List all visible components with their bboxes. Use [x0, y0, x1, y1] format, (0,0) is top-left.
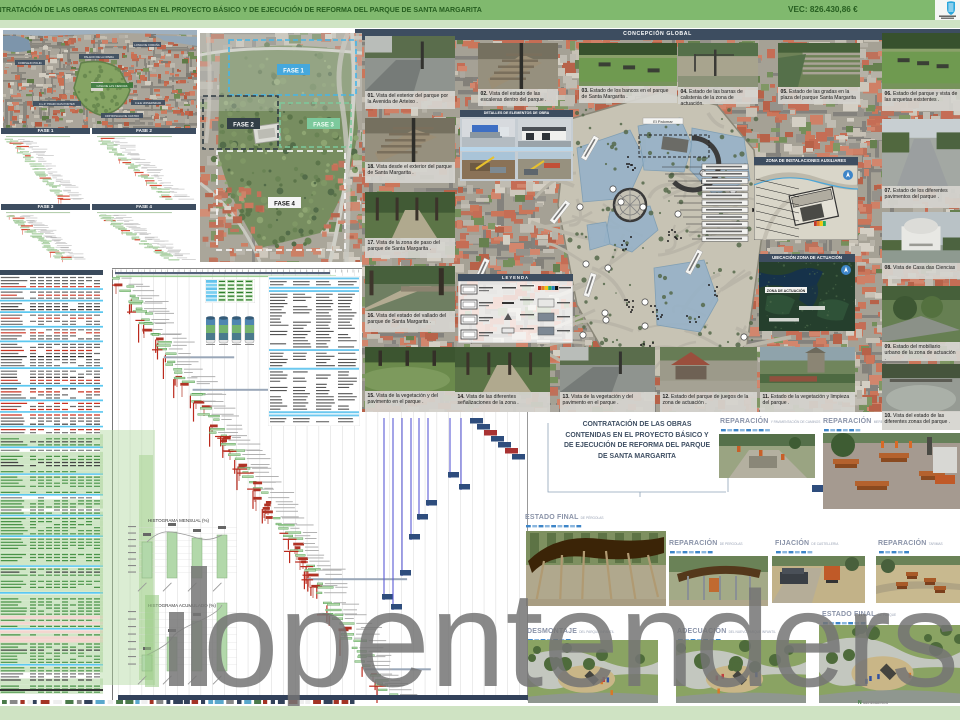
- svg-text:FASE 1: FASE 1: [283, 68, 304, 74]
- svg-text:FASE 4: FASE 4: [274, 201, 295, 207]
- svg-text:C.E.E UNIVERSIDAD: C.E.E UNIVERSIDAD: [135, 101, 161, 105]
- svg-text:El Palomar: El Palomar: [653, 119, 673, 124]
- svg-text:ZONA DE ACTUACIÓN: ZONA DE ACTUACIÓN: [767, 288, 806, 293]
- svg-text:COMPLEJO POLID.: COMPLEJO POLID.: [18, 61, 43, 65]
- svg-text:C.L.P. 'PRAZO DAS PONTES': C.L.P. 'PRAZO DAS PONTES': [39, 102, 76, 106]
- svg-text:PALACIO DE LA OPERA: PALACIO DE LA OPERA: [84, 55, 114, 59]
- svg-text:HISTOGRAMA MENSUAL (%): HISTOGRAMA MENSUAL (%): [148, 518, 210, 523]
- svg-text:FASE 3: FASE 3: [313, 122, 334, 128]
- svg-text:FASE 2: FASE 2: [233, 122, 254, 128]
- svg-text:CASA DE LAS CIENCIAS: CASA DE LAS CIENCIAS: [97, 84, 128, 88]
- svg-text:CDP ROSALIA DE CASTRO: CDP ROSALIA DE CASTRO: [105, 114, 139, 118]
